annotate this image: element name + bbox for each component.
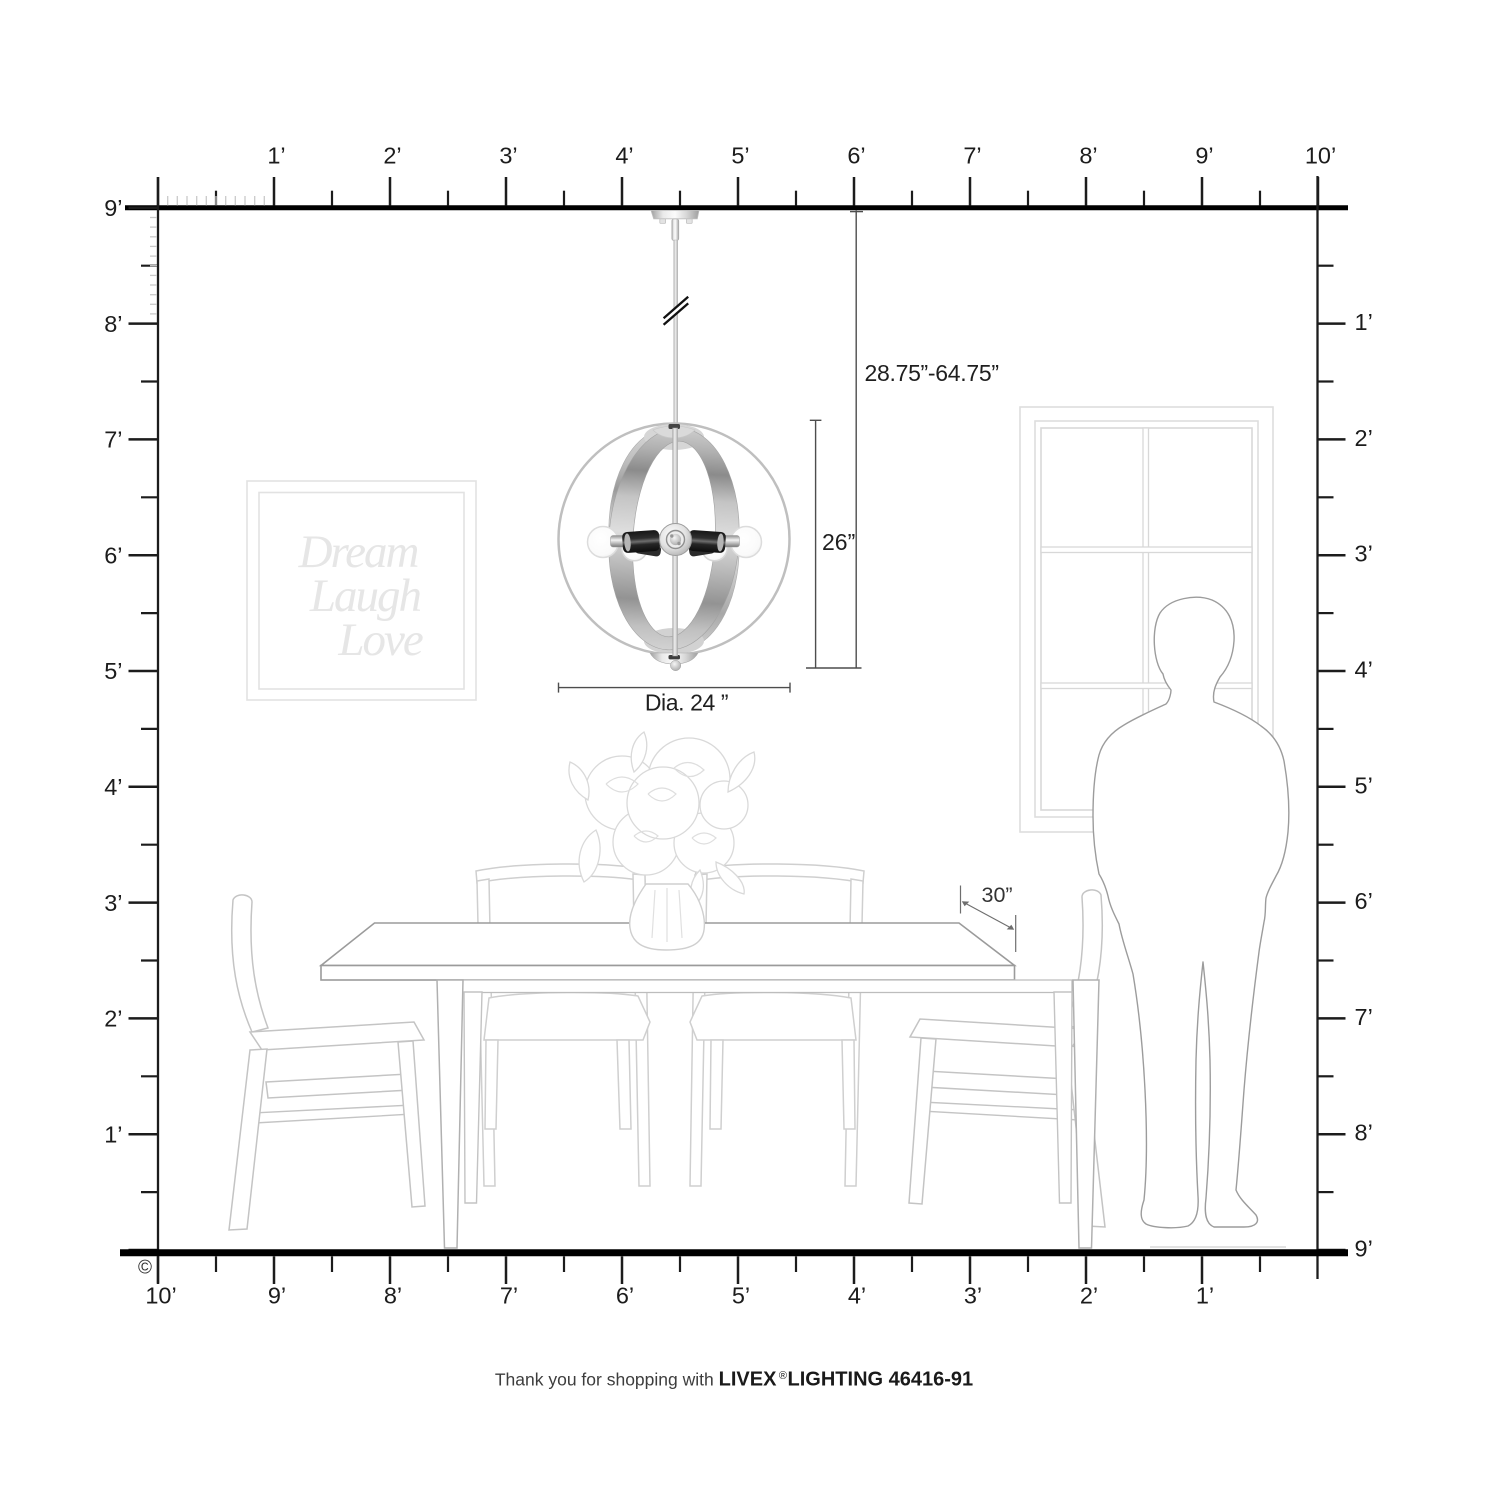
svg-text:6’: 6’ <box>847 143 865 169</box>
svg-text:28.75”-64.75”: 28.75”-64.75” <box>865 360 999 386</box>
svg-text:7’: 7’ <box>500 1283 518 1309</box>
svg-text:1’: 1’ <box>1196 1283 1214 1309</box>
svg-text:1’: 1’ <box>104 1121 122 1147</box>
svg-text:1’: 1’ <box>267 143 285 169</box>
svg-text:3’: 3’ <box>499 143 517 169</box>
svg-text:5’: 5’ <box>732 1283 750 1309</box>
svg-text:10’: 10’ <box>1305 143 1336 169</box>
svg-text:4’: 4’ <box>1355 657 1373 683</box>
svg-text:Love: Love <box>337 614 423 666</box>
svg-text:3’: 3’ <box>1355 541 1373 567</box>
svg-text:6’: 6’ <box>104 542 122 568</box>
svg-text:9’: 9’ <box>268 1283 286 1309</box>
svg-text:7’: 7’ <box>104 427 122 453</box>
svg-text:8’: 8’ <box>1355 1120 1373 1146</box>
svg-text:©: © <box>138 1258 152 1279</box>
svg-text:9’: 9’ <box>104 195 122 221</box>
svg-text:26”: 26” <box>822 529 855 555</box>
svg-text:8’: 8’ <box>1079 143 1097 169</box>
svg-text:7’: 7’ <box>963 143 981 169</box>
svg-text:6’: 6’ <box>616 1283 634 1309</box>
svg-text:4’: 4’ <box>615 143 633 169</box>
svg-text:8’: 8’ <box>384 1283 402 1309</box>
svg-text:3’: 3’ <box>104 890 122 916</box>
svg-text:10’: 10’ <box>145 1283 176 1309</box>
svg-text:1’: 1’ <box>1355 309 1373 335</box>
svg-text:8’: 8’ <box>104 311 122 337</box>
svg-text:Dia. 24 ”: Dia. 24 ” <box>645 690 728 716</box>
svg-text:5’: 5’ <box>1355 772 1373 798</box>
svg-text:Thank you for shopping with LI: Thank you for shopping with LIVEX®LIGHTI… <box>495 1369 973 1391</box>
svg-text:7’: 7’ <box>1355 1004 1373 1030</box>
svg-text:5’: 5’ <box>731 143 749 169</box>
svg-text:2’: 2’ <box>1355 425 1373 451</box>
svg-text:2’: 2’ <box>1080 1283 1098 1309</box>
svg-text:9’: 9’ <box>1355 1236 1373 1262</box>
svg-text:6’: 6’ <box>1355 888 1373 914</box>
svg-text:5’: 5’ <box>104 658 122 684</box>
svg-text:3’: 3’ <box>964 1283 982 1309</box>
svg-text:4’: 4’ <box>104 774 122 800</box>
svg-text:2’: 2’ <box>383 143 401 169</box>
svg-text:30”: 30” <box>982 883 1013 907</box>
svg-text:2’: 2’ <box>104 1006 122 1032</box>
svg-text:9’: 9’ <box>1195 143 1213 169</box>
svg-text:4’: 4’ <box>848 1283 866 1309</box>
